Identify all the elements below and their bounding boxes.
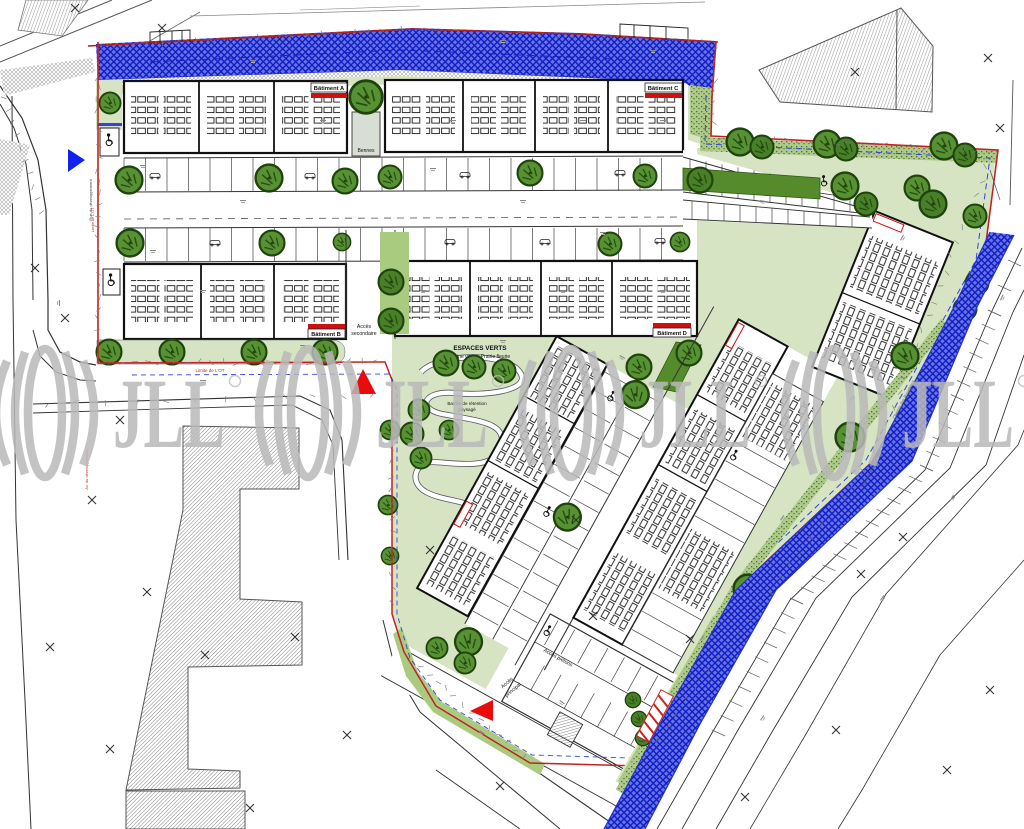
svg-text:JLL: JLL: [639, 358, 751, 469]
svg-text:Bâtiment A: Bâtiment A: [314, 86, 345, 92]
svg-text:Limite de L'OT: Limite de L'OT: [91, 207, 95, 232]
svg-text:Accès: Accès: [357, 324, 372, 330]
svg-text:secondaire: secondaire: [351, 331, 376, 337]
svg-text:JLL: JLL: [902, 358, 1014, 469]
svg-text:JLL: JLL: [376, 358, 488, 469]
svg-text:Bâtiment C: Bâtiment C: [648, 86, 679, 92]
svg-text:Bâtiment D: Bâtiment D: [657, 331, 687, 337]
svg-text:Bâtiment B: Bâtiment B: [311, 332, 341, 338]
svg-text:ESPACES VERTS: ESPACES VERTS: [453, 345, 507, 352]
svg-text:JLL: JLL: [113, 358, 225, 469]
svg-text:Bennes: Bennes: [358, 148, 375, 154]
